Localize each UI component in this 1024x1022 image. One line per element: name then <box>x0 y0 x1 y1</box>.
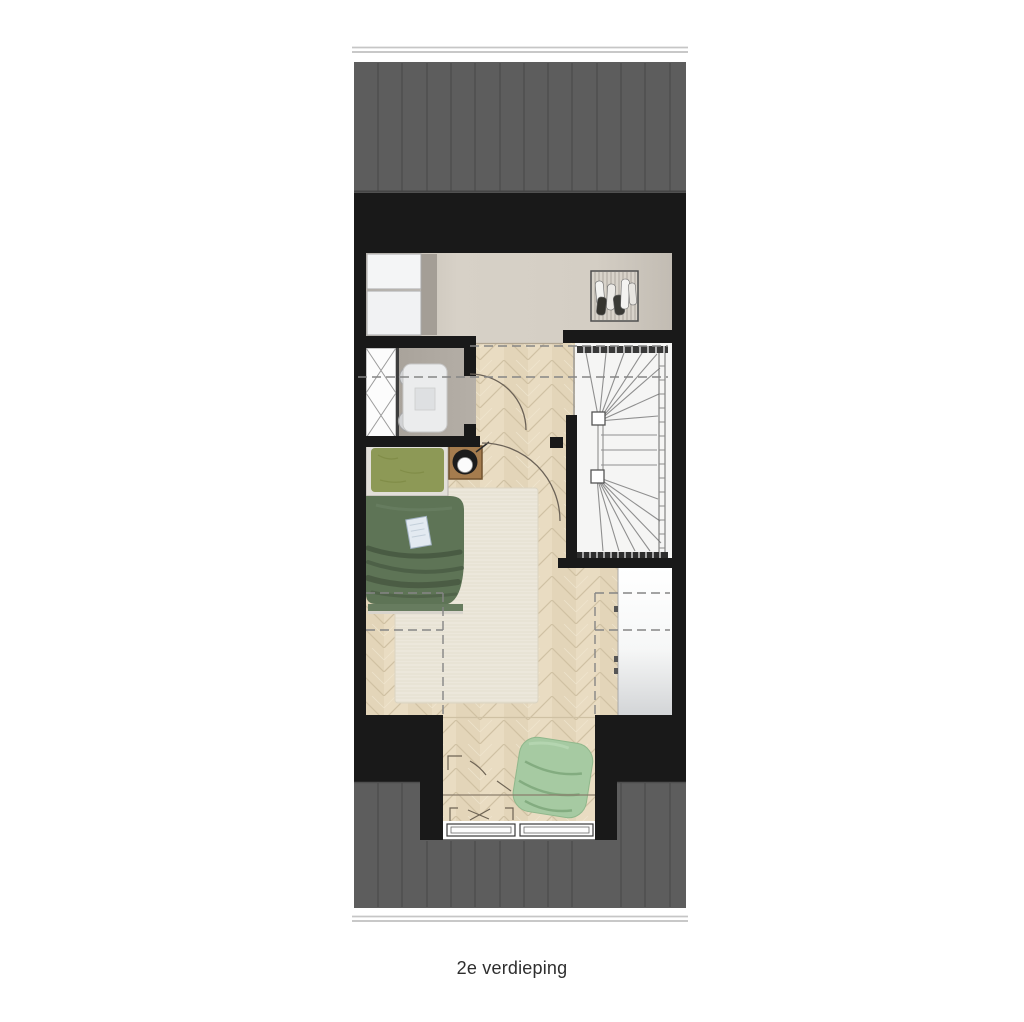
wall-bathroom-east-top <box>464 336 476 376</box>
wardrobe-handle <box>614 606 618 612</box>
book-on-bed <box>406 516 432 548</box>
staircase <box>574 343 672 559</box>
dormer-windows <box>443 821 595 840</box>
wardrobe-handle <box>614 656 618 662</box>
beanbag-chair <box>511 735 596 821</box>
floor-plan-page: 2e verdieping <box>0 0 1024 1022</box>
wall-dormer-right-block <box>595 715 686 782</box>
wall-west <box>354 250 366 717</box>
floor-caption: 2e verdieping <box>0 958 1024 979</box>
top-gutter-lines <box>352 48 688 53</box>
shower <box>366 348 398 438</box>
clothes-rack <box>591 271 638 321</box>
window-frame-right <box>520 824 593 836</box>
wall-dormer-left-block <box>354 715 443 782</box>
stair-newel-bottom <box>591 470 604 483</box>
wall-dormer-left-column <box>420 782 443 840</box>
window-frame-left <box>447 824 515 836</box>
wall-stair-top <box>563 330 672 343</box>
wall-stair-bottom <box>558 558 686 568</box>
stair-newel-top <box>592 412 605 425</box>
table-with-stools <box>399 364 448 432</box>
floor-plan-svg <box>0 0 1024 1022</box>
wall-bathroom-north <box>354 336 476 348</box>
wall-bedroom-north <box>366 436 480 447</box>
table-tray <box>415 388 435 410</box>
wall-dormer-right-column <box>595 782 617 840</box>
bathroom <box>366 348 476 438</box>
washer-dryer-stack <box>367 254 437 335</box>
wall-east <box>672 250 686 717</box>
stair-balustrade-top <box>577 346 668 353</box>
bed-foot-frame <box>368 604 463 611</box>
wall-door-jamb <box>550 437 563 448</box>
wardrobe-handle <box>614 668 618 674</box>
roof-top <box>354 62 686 193</box>
pillow <box>371 448 444 492</box>
built-in-wardrobe <box>614 568 672 715</box>
stair-balustrade-bottom <box>577 552 668 559</box>
wall-top-band <box>354 193 686 253</box>
bottom-gutter-lines <box>352 917 688 922</box>
wall-stair-left <box>566 415 577 560</box>
